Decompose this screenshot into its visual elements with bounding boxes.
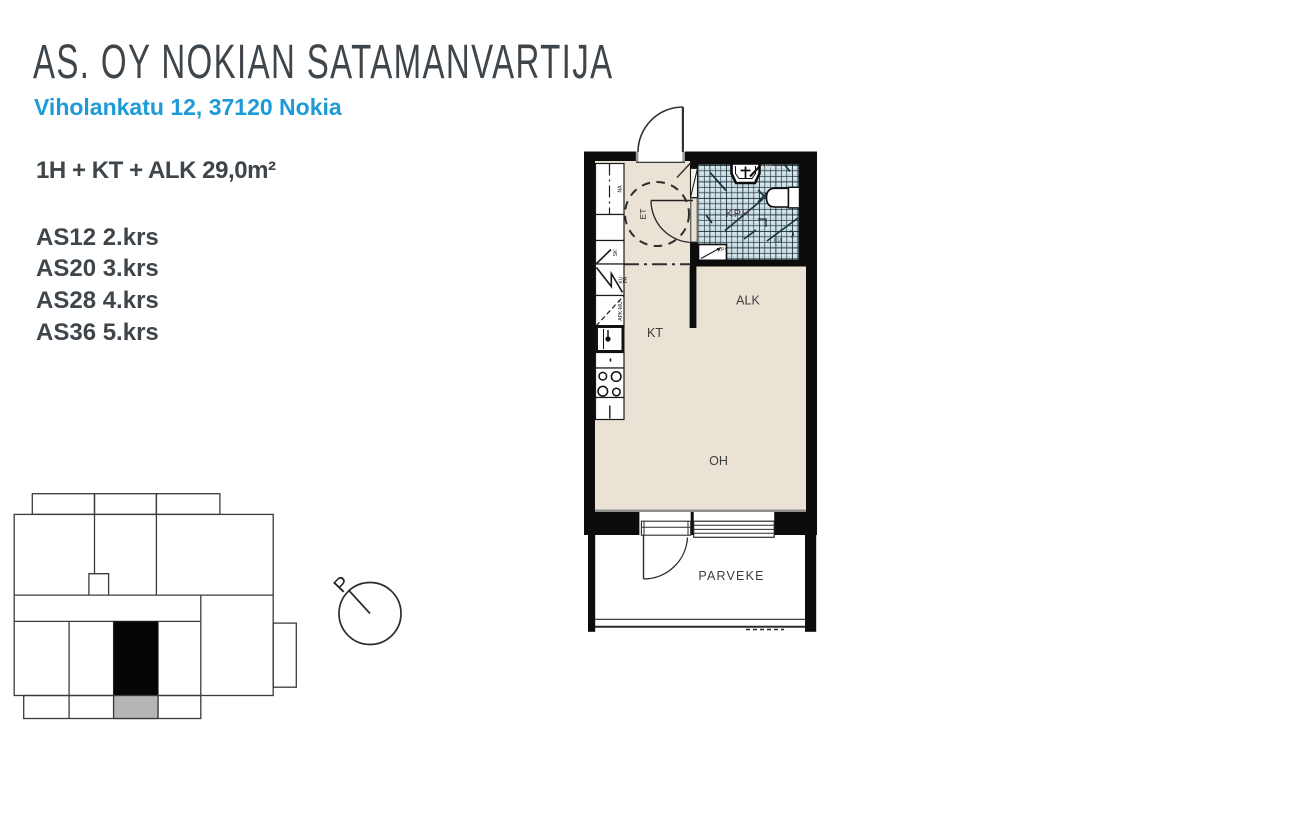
- svg-text:PY: PY: [721, 248, 728, 254]
- svg-text:KUI: KUI: [774, 238, 782, 244]
- svg-text:NA: NA: [618, 185, 624, 193]
- svg-text:OH: OH: [709, 454, 728, 468]
- svg-text:KT: KT: [647, 326, 663, 340]
- svg-text:ALK: ALK: [736, 294, 760, 308]
- svg-text:PA: PA: [623, 276, 629, 283]
- svg-text:PARVEKE: PARVEKE: [698, 569, 764, 583]
- svg-text:KPH: KPH: [725, 208, 750, 220]
- svg-text:ET: ET: [638, 209, 648, 220]
- svg-text:APK-MU: APK-MU: [618, 301, 624, 321]
- svg-text:SK: SK: [613, 249, 619, 256]
- svg-text:LK1: LK1: [762, 165, 772, 171]
